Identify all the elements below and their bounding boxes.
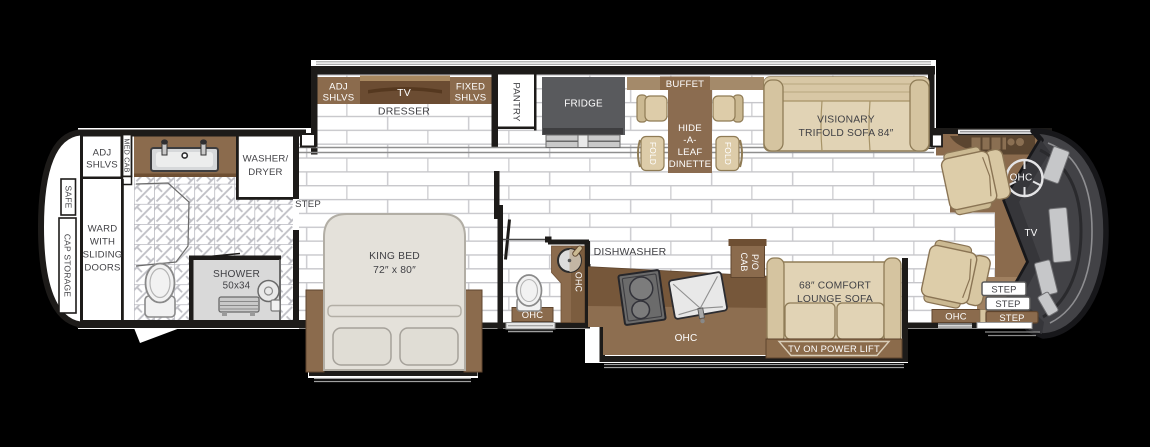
- svg-text:SLIDING: SLIDING: [83, 250, 123, 261]
- svg-text:50x34: 50x34: [223, 281, 251, 292]
- svg-text:STEP: STEP: [295, 199, 321, 210]
- svg-text:TRIFOLD SOFA 84″: TRIFOLD SOFA 84″: [799, 128, 894, 139]
- svg-text:PANTRY: PANTRY: [511, 82, 522, 122]
- svg-text:STEP: STEP: [995, 298, 1020, 309]
- svg-text:CAB: CAB: [739, 252, 749, 271]
- svg-text:TV: TV: [397, 87, 411, 99]
- svg-text:FIXED: FIXED: [456, 82, 485, 93]
- svg-text:MED CAB: MED CAB: [123, 138, 132, 172]
- svg-text:STEP: STEP: [991, 284, 1016, 295]
- svg-text:DINETTE: DINETTE: [669, 159, 711, 170]
- svg-text:SHOWER: SHOWER: [213, 269, 260, 280]
- svg-text:FRIDGE: FRIDGE: [564, 99, 603, 110]
- svg-text:HIDE: HIDE: [678, 123, 702, 134]
- svg-text:-A-: -A-: [683, 135, 696, 146]
- svg-text:68″ COMFORT: 68″ COMFORT: [799, 281, 872, 292]
- svg-text:OHC: OHC: [675, 333, 698, 344]
- svg-text:TV ON POWER LIFT: TV ON POWER LIFT: [788, 343, 880, 354]
- svg-text:LEAF: LEAF: [678, 147, 703, 158]
- svg-text:SHLVS: SHLVS: [323, 93, 355, 104]
- svg-text:WARD: WARD: [88, 224, 118, 235]
- svg-text:DRYER: DRYER: [248, 167, 282, 178]
- svg-text:DISHWASHER: DISHWASHER: [594, 246, 667, 258]
- svg-text:SAFE: SAFE: [64, 185, 74, 208]
- svg-text:KING BED: KING BED: [369, 251, 420, 262]
- svg-text:FOLD: FOLD: [648, 142, 658, 165]
- svg-text:DRESSER: DRESSER: [378, 106, 430, 118]
- svg-text:FOLD: FOLD: [723, 142, 733, 165]
- svg-text:WASHER/: WASHER/: [243, 154, 289, 165]
- svg-text:VISIONARY: VISIONARY: [817, 115, 875, 126]
- svg-text:WITH: WITH: [90, 237, 115, 248]
- svg-text:LOUNGE SOFA: LOUNGE SOFA: [797, 294, 873, 305]
- svg-text:BUFFET: BUFFET: [666, 79, 705, 90]
- svg-text:STEP: STEP: [999, 312, 1024, 323]
- svg-text:ADJ: ADJ: [329, 82, 348, 93]
- svg-text:P/O: P/O: [750, 254, 760, 270]
- svg-text:TV: TV: [1025, 228, 1038, 239]
- svg-text:OHC: OHC: [945, 311, 966, 322]
- svg-text:OHC: OHC: [1010, 173, 1033, 184]
- svg-text:DOORS: DOORS: [84, 263, 120, 274]
- svg-text:SHLVS: SHLVS: [455, 93, 487, 104]
- svg-text:OHC: OHC: [574, 272, 584, 293]
- svg-text:72″ x 80″: 72″ x 80″: [373, 265, 416, 276]
- svg-text:CAP STORAGE: CAP STORAGE: [63, 234, 73, 297]
- svg-text:ADJ: ADJ: [93, 148, 112, 159]
- svg-text:SHLVS: SHLVS: [86, 160, 118, 171]
